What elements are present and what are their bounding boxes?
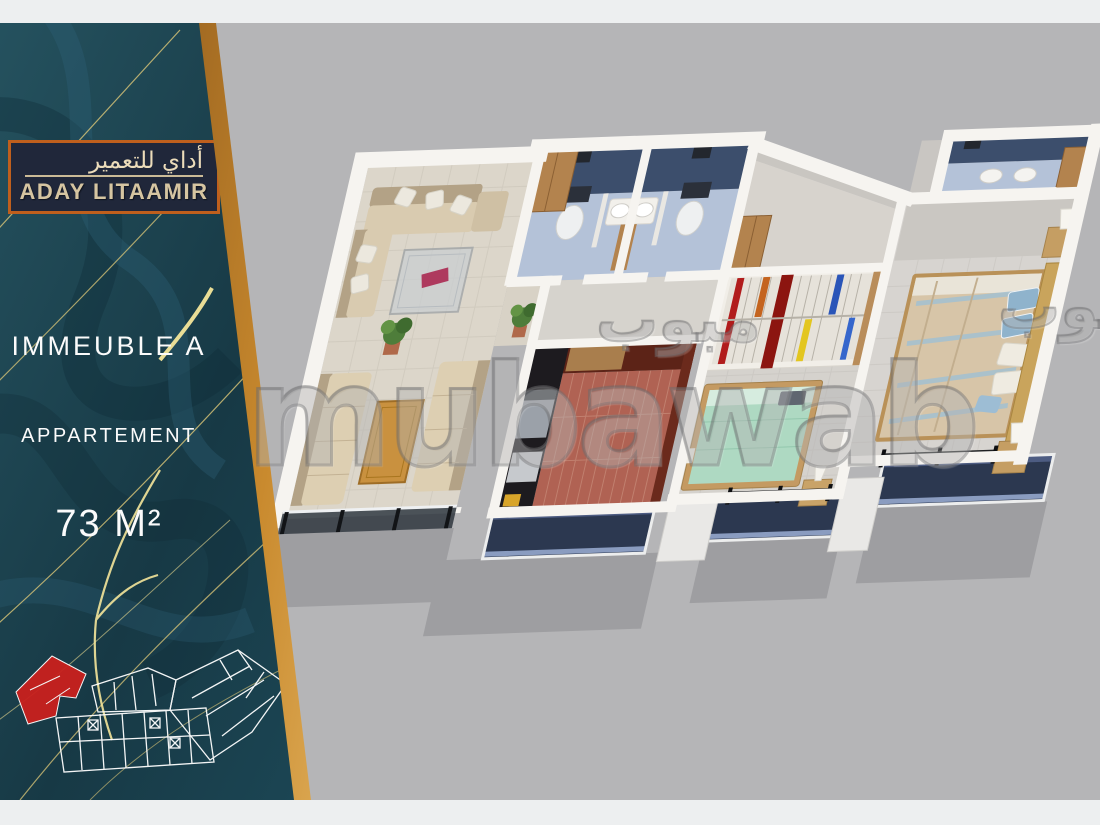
top-margin-band: [0, 0, 1100, 23]
single-bed: [681, 380, 823, 490]
unit-type-label: APPARTEMENT: [0, 425, 218, 448]
minimap-highlighted-unit: [16, 656, 86, 724]
building-minimap: [2, 642, 302, 792]
developer-logo: أداي للتعمير ADAY LITAAMIR: [8, 140, 220, 214]
coffee-table: [390, 248, 473, 314]
wardrobe: [704, 267, 885, 371]
minimap-right-wing: [170, 650, 286, 760]
logo-arabic-text: أداي للتعمير: [17, 149, 211, 173]
kitchen-cabinet: [565, 345, 627, 371]
bottom-margin-band: [0, 800, 1100, 825]
pillow: [778, 391, 807, 406]
logo-latin-text: ADAY LITAAMIR: [17, 179, 211, 205]
area-label: 73 M²: [0, 503, 218, 546]
listing-poster: أداي للتعمير ADAY LITAAMIR IMMEUBLE A AP…: [0, 0, 1100, 825]
kitchen-item: [502, 494, 521, 507]
logo-divider: [25, 175, 203, 177]
building-label: IMMEUBLE A: [0, 331, 218, 362]
